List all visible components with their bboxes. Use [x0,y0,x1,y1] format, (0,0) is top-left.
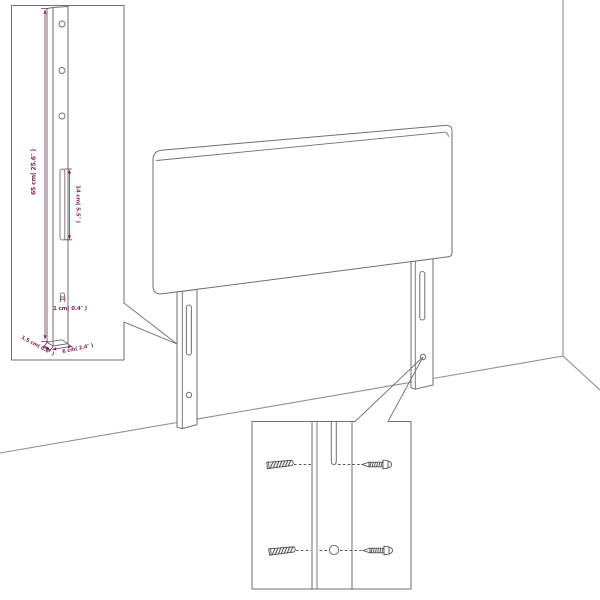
assembly-diagram: 65 cm( 25.6″ ) 14 cm( 5.5″ ) 1 cm( 0.4″ … [0,0,600,600]
detail-pointer-lines [355,357,423,422]
headboard-panel [153,125,452,294]
callout-leg-board [47,7,68,347]
screw-detail-callout [252,357,423,589]
left-leg [177,289,197,428]
right-leg [411,259,433,390]
callout-pointer-lines [124,303,177,344]
floor-line-right [563,356,600,390]
slot-length-label: 14 cm( 5.5″ ) [75,185,81,223]
board-height-label: 65 cm( 25.6″ ) [31,149,38,195]
leg-dimension-callout: 65 cm( 25.6″ ) 14 cm( 5.5″ ) 1 cm( 0.4″ … [12,6,178,361]
hole-size-label: 1 cm( 0.4″ ) [53,306,88,312]
